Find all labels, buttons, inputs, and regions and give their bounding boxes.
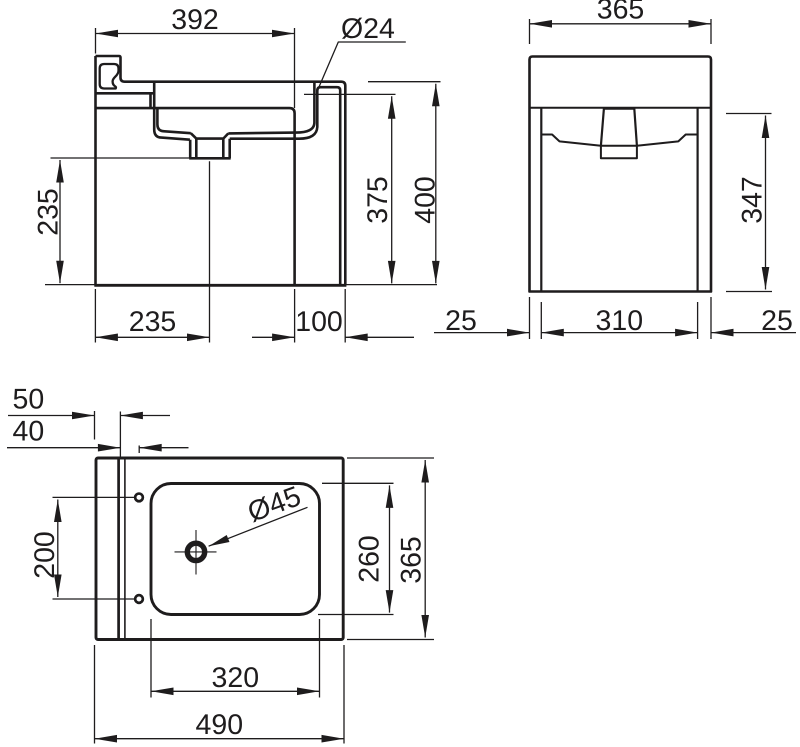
svg-text:365: 365	[597, 0, 645, 26]
svg-text:Ø24: Ø24	[341, 13, 395, 45]
svg-text:200: 200	[29, 531, 61, 579]
svg-text:392: 392	[171, 4, 219, 36]
svg-text:490: 490	[196, 709, 244, 741]
svg-text:25: 25	[445, 305, 477, 337]
svg-text:375: 375	[362, 176, 394, 224]
svg-text:320: 320	[212, 662, 260, 694]
svg-text:400: 400	[410, 176, 442, 224]
svg-text:260: 260	[354, 535, 386, 583]
svg-text:40: 40	[13, 416, 45, 448]
svg-text:235: 235	[129, 306, 177, 338]
svg-text:Ø45: Ø45	[244, 480, 306, 528]
svg-text:100: 100	[295, 306, 343, 338]
svg-text:347: 347	[737, 176, 769, 224]
svg-text:235: 235	[33, 188, 65, 236]
svg-text:25: 25	[761, 305, 793, 337]
svg-text:365: 365	[396, 536, 428, 584]
svg-text:310: 310	[596, 305, 644, 337]
svg-text:50: 50	[13, 384, 45, 416]
